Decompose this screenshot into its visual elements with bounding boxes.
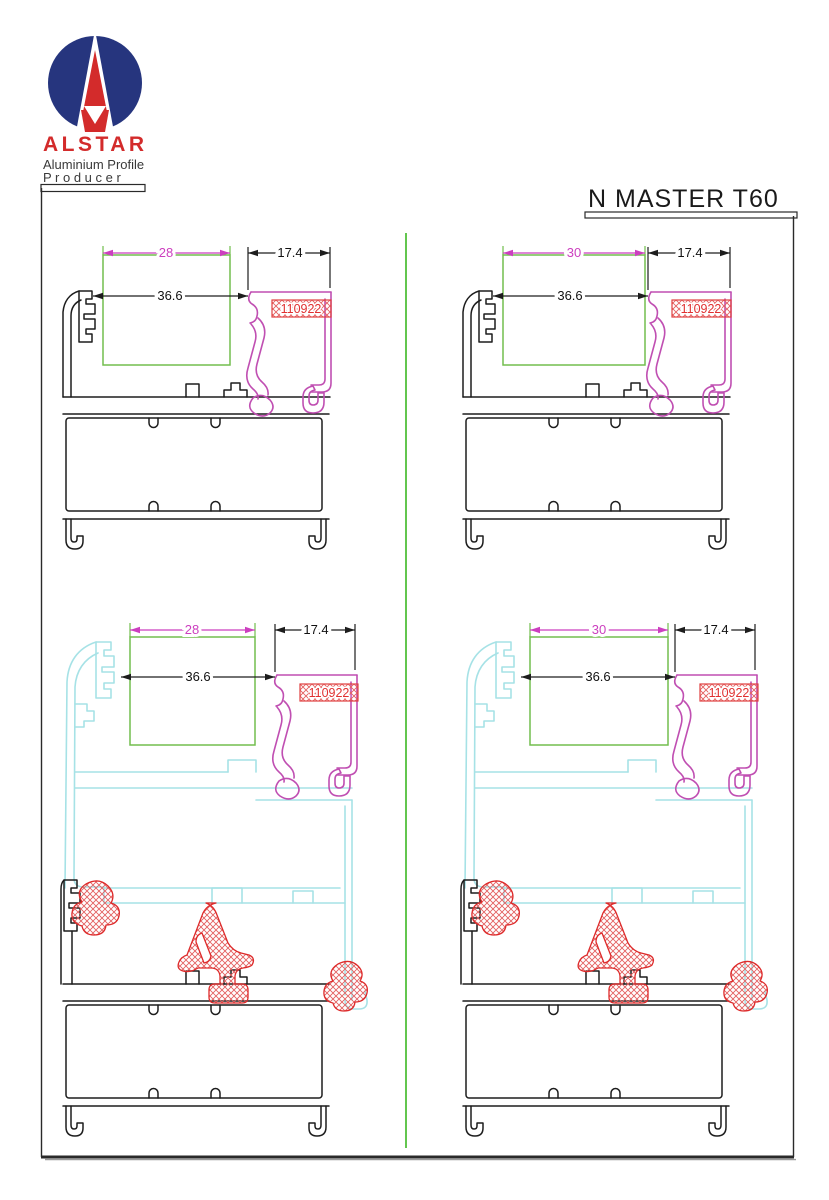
dims-top-right: 30 17.4 36.6 110922 bbox=[493, 245, 731, 365]
dim-inner: 36.6 bbox=[585, 669, 610, 684]
dim-glass: 30 bbox=[567, 245, 581, 260]
glass-zone-rect bbox=[530, 637, 668, 745]
dim-inner: 36.6 bbox=[185, 669, 210, 684]
dim-inner: 36.6 bbox=[157, 288, 182, 303]
diagram-bottom-right bbox=[461, 642, 767, 1136]
alstar-logo: ALSTAR Aluminium Profile P r o d u c e r bbox=[43, 30, 148, 185]
dim-bead: 17.4 bbox=[677, 245, 702, 260]
dims-top-left: 28 17.4 36.6 110922 bbox=[93, 245, 331, 365]
drawing-page: { "logo": { "brand": "ALSTAR", "tagline1… bbox=[0, 0, 829, 1200]
dim-bead: 17.4 bbox=[303, 622, 328, 637]
brand-tagline-2: P r o d u c e r bbox=[43, 170, 121, 185]
drawing-title: N MASTER T60 bbox=[588, 185, 779, 213]
border-bottom bbox=[41, 1156, 794, 1159]
profile-code: 110922 bbox=[309, 686, 350, 700]
dim-bead: 17.4 bbox=[703, 622, 728, 637]
glass-zone-rect bbox=[130, 637, 255, 745]
profile-code: 110922 bbox=[281, 302, 322, 316]
page-frame bbox=[41, 185, 797, 1160]
glass-zone-rect bbox=[503, 255, 645, 365]
brand-name: ALSTAR bbox=[43, 133, 148, 156]
profile-code: 110922 bbox=[709, 686, 750, 700]
dim-inner: 36.6 bbox=[557, 288, 582, 303]
dim-glass: 28 bbox=[185, 622, 199, 637]
profile-code: 110922 bbox=[681, 302, 722, 316]
dim-bead: 17.4 bbox=[277, 245, 302, 260]
dim-glass: 30 bbox=[592, 622, 606, 637]
dims-bottom-right: 30 17.4 36.6 110922 bbox=[521, 622, 758, 745]
logo-underline-bar bbox=[41, 185, 145, 192]
dim-glass: 28 bbox=[159, 245, 173, 260]
diagram-bottom-left bbox=[61, 642, 367, 1136]
dims-bottom-left: 28 17.4 36.6 110922 bbox=[121, 622, 358, 745]
glass-zone-rect bbox=[103, 255, 230, 365]
technical-drawing-canvas: ALSTAR Aluminium Profile P r o d u c e r… bbox=[0, 0, 829, 1200]
